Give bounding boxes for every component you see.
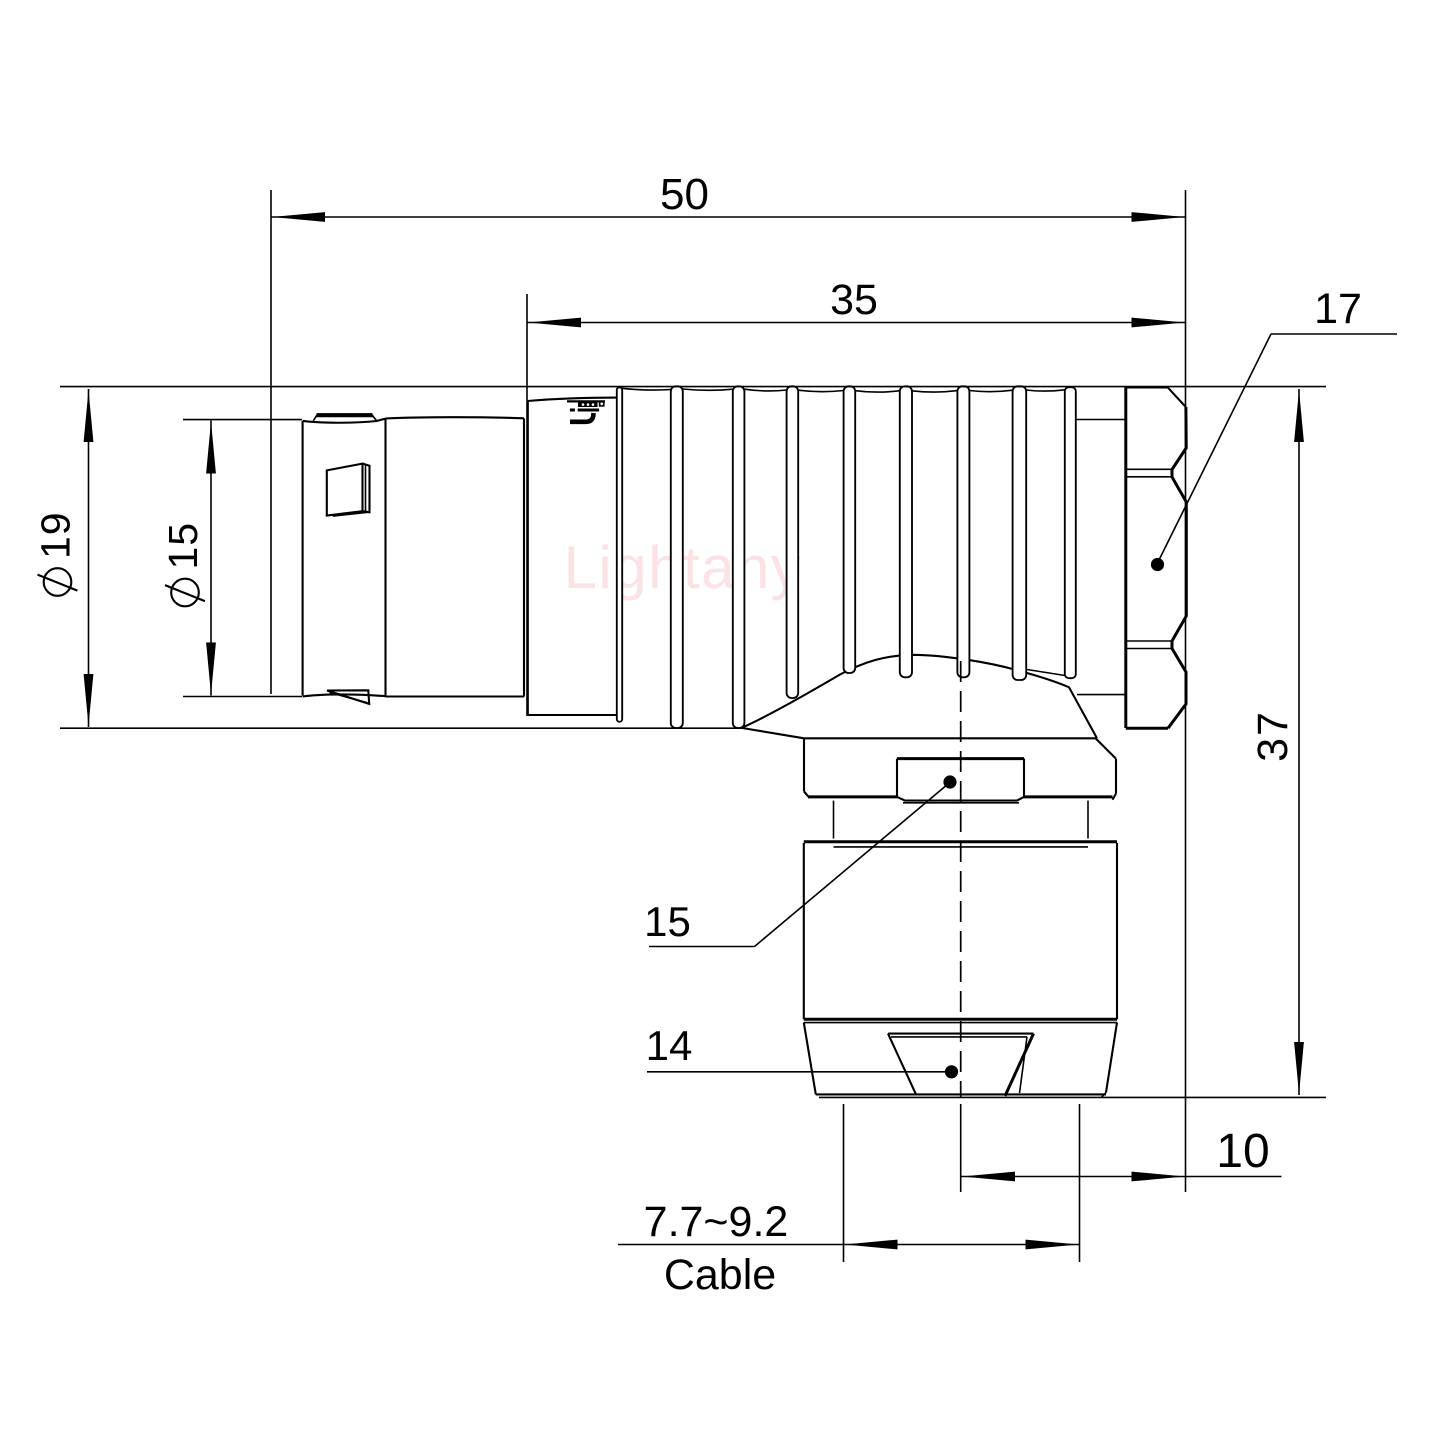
svg-text:19: 19 — [33, 511, 79, 559]
svg-text:35: 35 — [830, 276, 878, 324]
svg-text:17: 17 — [1314, 285, 1362, 333]
svg-text:37: 37 — [1249, 710, 1297, 762]
svg-text:7.7~9.2: 7.7~9.2 — [644, 1198, 789, 1246]
svg-text:15: 15 — [644, 898, 691, 945]
svg-text:15: 15 — [160, 522, 206, 570]
svg-text:14: 14 — [646, 1022, 693, 1069]
svg-text:50: 50 — [660, 170, 709, 219]
svg-text:10: 10 — [1216, 1125, 1269, 1178]
svg-text:Cable: Cable — [664, 1251, 776, 1299]
